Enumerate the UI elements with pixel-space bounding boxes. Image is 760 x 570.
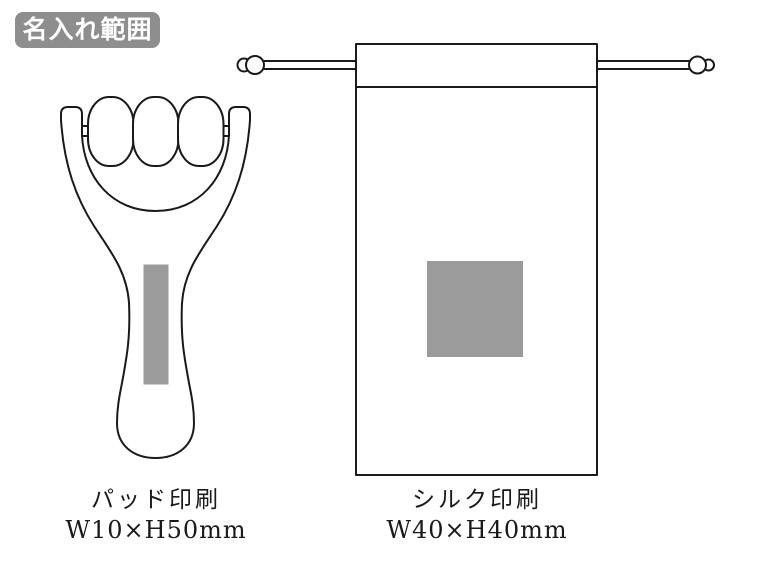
roller-print-size: W10×H50mm	[36, 516, 276, 544]
roller-print-label: パッド印刷 W10×H50mm	[36, 486, 276, 544]
drawstring-pouch-drawing	[238, 44, 715, 475]
pouch-print-area	[427, 261, 523, 357]
pouch-right-cord-bead	[689, 57, 706, 74]
imprint-area-diagram: 名入れ範囲 パッド印刷 W10×H50mm シルク印刷 W40×H40mm	[0, 0, 760, 570]
roller-pin-middle	[133, 97, 179, 166]
pouch-left-cord-bead	[246, 56, 264, 74]
pouch-right-cord	[597, 61, 700, 69]
pouch-print-method: シルク印刷	[357, 486, 597, 514]
roller-print-area	[144, 265, 169, 385]
pouch-print-size: W40×H40mm	[357, 516, 597, 544]
pouch-print-label: シルク印刷 W40×H40mm	[357, 486, 597, 544]
diagram-graphics	[0, 0, 760, 570]
imprint-area-badge: 名入れ範囲	[15, 12, 160, 48]
roller-print-method: パッド印刷	[36, 486, 276, 514]
roller-pin-left	[88, 97, 134, 166]
pouch-body	[356, 44, 597, 475]
roller-pin-right	[178, 97, 224, 166]
pouch-left-cord	[258, 61, 356, 69]
face-roller-drawing	[61, 97, 250, 458]
